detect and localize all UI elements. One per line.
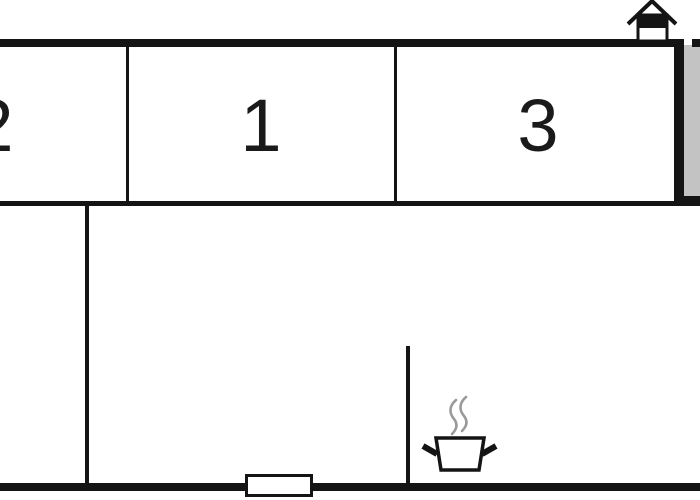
room-living-area: [89, 206, 406, 483]
wall-right-exterior: [674, 39, 684, 206]
house-entrance-icon: [626, 0, 678, 44]
wall-top-stub: [692, 39, 700, 47]
wall-lower-left: [85, 206, 89, 486]
cooking-pot-icon: [418, 392, 498, 476]
pot-body-icon: [436, 438, 484, 470]
wall-kitchen-partition: [406, 346, 410, 486]
wall-between-rooms-1-3: [394, 47, 397, 201]
wall-bottom-exterior: [0, 483, 700, 491]
wall-middle-horizontal: [0, 201, 700, 206]
window-icon: [245, 474, 313, 497]
room-1-label: 1: [221, 89, 301, 163]
terrace-area: [684, 45, 700, 201]
steam-icon: [450, 400, 456, 434]
pot-handle-left-icon: [423, 446, 437, 454]
room-3-label: 3: [498, 89, 578, 163]
wall-terrace-bottom: [674, 196, 700, 206]
room-lower-left: [0, 206, 85, 483]
floor-plan: 2 1 3: [0, 0, 700, 500]
room-2-label: 2: [0, 89, 33, 163]
house-body-top-icon: [637, 14, 668, 28]
steam-icon: [460, 397, 466, 431]
wall-between-rooms-2-1: [126, 47, 129, 201]
wall-top-exterior: [0, 39, 684, 47]
